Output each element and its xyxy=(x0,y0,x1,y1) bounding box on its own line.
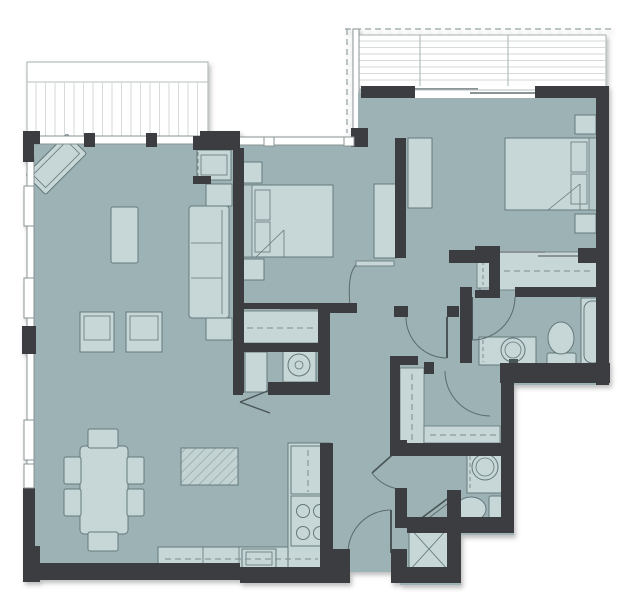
armchair-1 xyxy=(80,312,114,352)
floor-corridor xyxy=(333,312,400,572)
dining-chair-left-1 xyxy=(64,457,81,484)
wall xyxy=(235,343,322,352)
bedroom2-closet-fill xyxy=(243,311,320,343)
bed2-mattress xyxy=(243,185,333,257)
window-wall-bed2 xyxy=(237,137,353,145)
wall xyxy=(447,306,459,317)
wall xyxy=(395,488,407,528)
wall xyxy=(320,443,333,583)
coffee-table xyxy=(111,207,138,263)
window-wall-top-left xyxy=(33,136,200,144)
bed2-headboard xyxy=(243,185,252,257)
window-tick xyxy=(344,137,354,146)
wall xyxy=(500,363,610,383)
bed2-dresser xyxy=(374,184,396,258)
utility-shelf xyxy=(245,352,267,392)
balcony-left-deck xyxy=(27,62,208,137)
dining-chair-right-2 xyxy=(127,489,144,516)
wall xyxy=(424,362,434,374)
wall xyxy=(390,443,502,456)
dining-chair-bottom xyxy=(88,532,118,551)
wall xyxy=(23,488,35,563)
master-nightstand-bottom xyxy=(575,214,596,233)
sofa xyxy=(189,206,229,318)
master-nightstand-top xyxy=(575,115,596,134)
wall xyxy=(400,356,418,365)
wall xyxy=(394,306,408,317)
dining-chair-right-1 xyxy=(127,457,144,484)
window-sill xyxy=(24,186,34,226)
dining-chair-top xyxy=(88,429,118,448)
wall xyxy=(515,287,608,297)
wall xyxy=(240,567,350,583)
kitchen-island-hatch xyxy=(181,448,238,485)
wall xyxy=(233,382,243,395)
wall xyxy=(233,148,244,393)
wall xyxy=(501,363,514,533)
wall xyxy=(390,356,400,456)
window-tick xyxy=(264,137,274,146)
tv-unit xyxy=(197,150,231,180)
floor-plan xyxy=(0,0,640,605)
wall xyxy=(193,176,211,184)
dining-chair-left-2 xyxy=(64,489,81,516)
wall xyxy=(578,248,600,263)
mullion-post xyxy=(146,133,157,147)
window-sill xyxy=(24,464,34,488)
wall xyxy=(475,290,491,298)
floor-plan-svg xyxy=(0,0,640,605)
armchair-2 xyxy=(126,312,162,352)
wall xyxy=(596,86,609,385)
master-dresser xyxy=(408,138,432,208)
wall xyxy=(361,86,415,98)
wall xyxy=(23,131,34,162)
wall xyxy=(475,246,491,254)
bed2-door-shelf xyxy=(356,261,394,266)
end-table-bottom xyxy=(206,318,232,340)
wall xyxy=(244,303,320,309)
wall xyxy=(22,326,36,354)
wall xyxy=(193,136,237,150)
wall xyxy=(460,287,472,363)
dining-table xyxy=(80,446,128,534)
wall xyxy=(391,567,461,583)
window-sill xyxy=(24,278,34,318)
balcony-right-deck xyxy=(356,35,606,89)
wall xyxy=(23,563,240,580)
window-sill xyxy=(24,420,34,460)
end-table-top xyxy=(206,184,232,206)
wall xyxy=(268,382,330,395)
wall xyxy=(395,138,406,258)
master-toilet-bowl xyxy=(548,322,574,354)
mullion-post xyxy=(84,133,95,147)
master-bed-headboard xyxy=(589,138,597,210)
